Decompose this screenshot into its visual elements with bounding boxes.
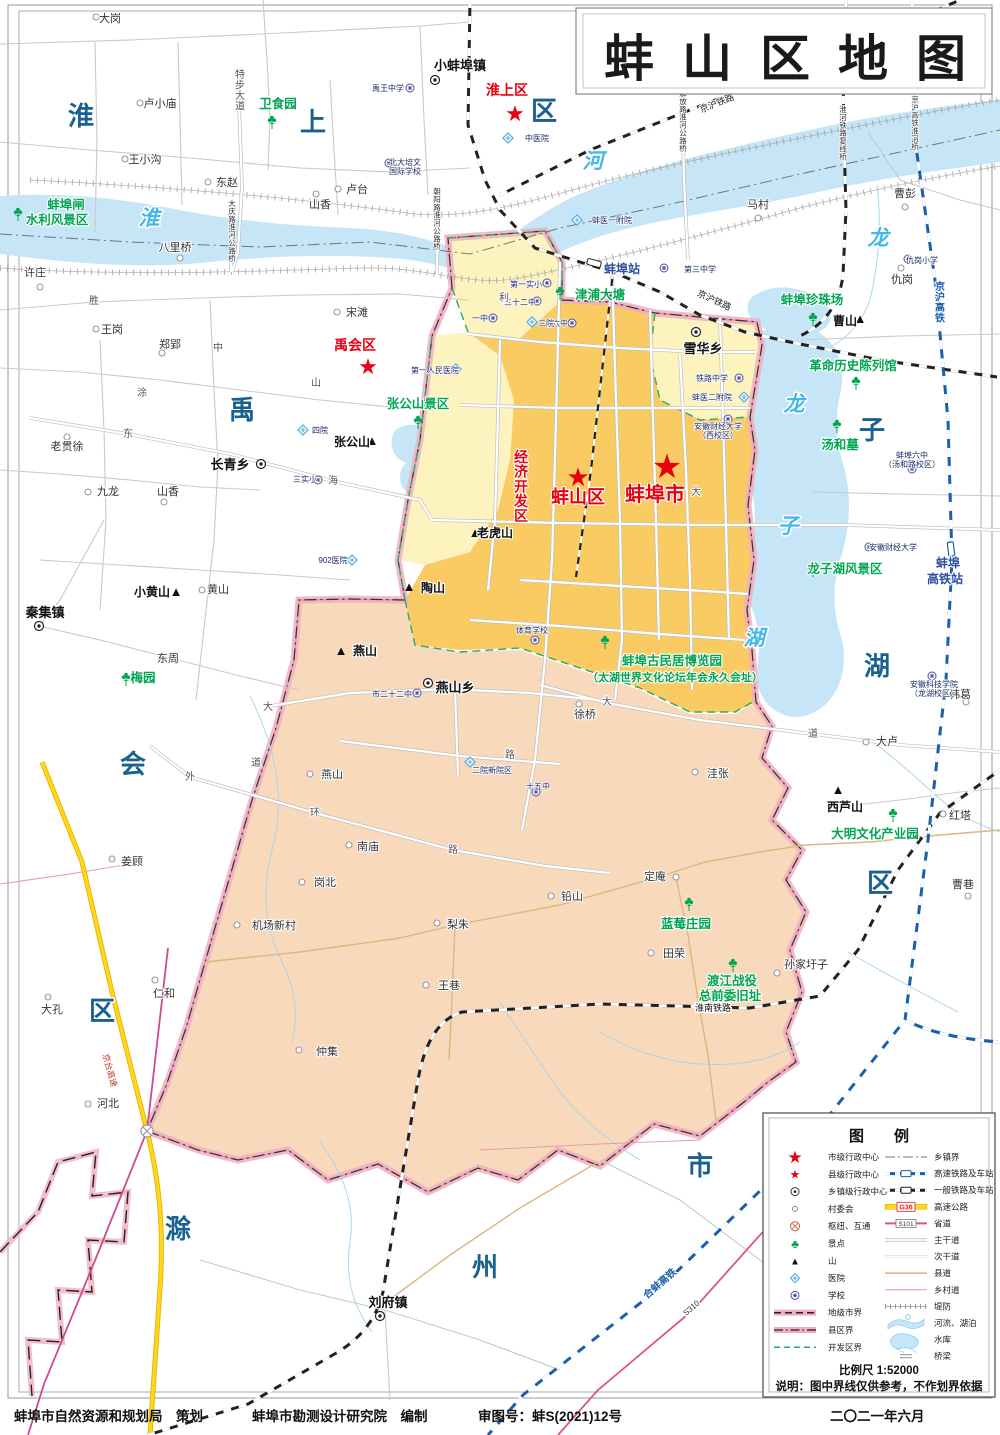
village-marker (296, 1047, 302, 1053)
bengshan-district-map: ★★★★▲▲▲▲▲▲▲♣♣♣♣♣♣♣♣♣♣♣♣♣ 淮上区禹会区子湖区滁州市淮河龙… (0, 0, 1000, 1435)
legend-item-label: 开发区界 (828, 1342, 863, 1352)
legend: 图 例 ★市级行政中心★县级行政中心乡镇级行政中心村委会枢纽、互通♣景点▲山医院… (763, 1113, 995, 1397)
mountain-icon: ▲ (790, 1256, 800, 1267)
village-marker (93, 326, 99, 332)
map-label: 燕山乡 (435, 680, 474, 695)
map-label: 子 (778, 514, 801, 538)
village-marker (152, 977, 158, 983)
map-label: 蚌山区 (551, 487, 605, 507)
legend-item-label: 山 (828, 1256, 837, 1266)
interchange-icon (791, 1222, 800, 1231)
map-label: 禹会区 (334, 337, 376, 354)
map-label: 蚌埠 (936, 555, 960, 570)
map-label: 蚌埠六中 (896, 450, 928, 460)
village-marker (64, 434, 70, 440)
map-label: 王巷 (438, 979, 460, 992)
footer-date: 二〇二一年六月 (830, 1408, 925, 1424)
map-label: 仇岗 (891, 273, 913, 286)
legend-item-label: 水库 (934, 1335, 952, 1345)
map-label: 大 (263, 700, 273, 713)
village-marker (902, 204, 908, 210)
map-label: 铅山 (561, 889, 583, 903)
village-marker (45, 994, 51, 1000)
map-label: 区 (89, 997, 115, 1026)
map-label: 体育学校 (516, 625, 548, 635)
village-marker (774, 970, 780, 976)
village-marker (863, 739, 869, 745)
legend-item-label: 堤防 (934, 1301, 952, 1311)
legend-scale: 比例尺 1:52000 (839, 1363, 919, 1377)
map-label: 蚌埠珍珠场 (781, 292, 844, 307)
map-label: 陶山 (421, 580, 445, 595)
map-label: 南庙 (357, 839, 379, 853)
school-icon (791, 1291, 799, 1299)
map-label: 六中 (552, 318, 568, 328)
map-label: 湖 (864, 652, 890, 681)
map-label: 张公山景区 (387, 396, 450, 411)
svg-text:G36: G36 (899, 1204, 912, 1211)
map-label: 马村 (747, 197, 769, 211)
map-label: 大卢 (876, 734, 898, 748)
county-admin-star-icon: ★ (358, 354, 378, 379)
map-label: 安徽科技学院 (910, 679, 958, 689)
map-label: 郑郢 (159, 337, 181, 351)
village-marker (177, 255, 183, 261)
svg-text:S101: S101 (898, 1221, 914, 1228)
legend-item-label: 主干道 (934, 1235, 960, 1245)
map-label: 四院 (312, 425, 328, 435)
map-label: 曹彭 (894, 186, 916, 200)
township-marker (376, 1312, 385, 1321)
legend-item-label: 景点 (828, 1239, 846, 1249)
map-label: 上 (300, 108, 326, 137)
school-icon (531, 636, 539, 644)
svg-text:★: ★ (790, 1168, 801, 1182)
map-label: 大明文化产业园 (831, 826, 919, 841)
map-label: 机场新村 (252, 918, 296, 932)
village-marker (692, 769, 698, 775)
map-label: 特步大道 (235, 69, 245, 113)
legend-title: 图 例 (849, 1127, 909, 1145)
map-label: 大庆路淮河公路桥 (228, 198, 236, 263)
legend-item-label: 地级市界 (828, 1308, 863, 1318)
map-label: 淮南铁路 (695, 1002, 731, 1013)
map-label: 中医院 (525, 133, 549, 143)
village-marker (334, 309, 340, 315)
village-marker (940, 811, 946, 817)
map-label: 仇岗小学 (906, 255, 938, 265)
map-label: 龙 (784, 392, 808, 416)
map-label: 山香 (309, 198, 331, 211)
map-label: 徐桥 (574, 707, 596, 721)
village-marker (137, 100, 143, 106)
village-marker (109, 856, 115, 862)
map-label: 淮河铁路复线桥 (839, 104, 847, 161)
map-label: 蚌埠站 (604, 261, 640, 276)
map-label: 东周 (157, 652, 179, 665)
map-label: （西校区） (698, 430, 738, 440)
map-label: 田荣 (663, 947, 685, 960)
map-label: 区 (531, 97, 557, 126)
map-label: 燕山 (321, 768, 343, 781)
map-label: 市 (687, 1151, 713, 1181)
village-marker (122, 156, 128, 162)
map-label: 京沪高铁淮河桥 (911, 94, 919, 151)
legend-item-label: 县级行政中心 (828, 1169, 880, 1179)
footer-credit-compiler: 蚌埠市勘测设计研究院 编制 (252, 1408, 428, 1424)
legend-item-label: 乡村道 (934, 1285, 960, 1295)
map-label: 道 (808, 727, 818, 740)
school-icon (928, 672, 936, 680)
city-boundary-icon (774, 1310, 816, 1316)
village-marker (965, 893, 971, 899)
legend-item-label: 桥梁 (934, 1351, 952, 1361)
map-label: 王小沟 (129, 153, 162, 166)
village-marker (299, 879, 305, 885)
village-marker (576, 701, 582, 707)
mountain-icon: ▲ (335, 643, 348, 658)
map-label: 中 (213, 341, 223, 354)
map-label: 蚌埠闸 (47, 197, 85, 212)
map-label: 二院新院区 (472, 765, 512, 775)
map-label: 十五中 (526, 781, 550, 791)
map-label: 三实小 (293, 474, 317, 484)
map-label: 道 (251, 756, 261, 769)
map-label: 高铁站 (927, 571, 963, 586)
map-label: 许庄 (24, 265, 46, 279)
map-label: 902医院 (318, 555, 347, 565)
county-boundary-icon (774, 1327, 816, 1333)
hsr-station-icon (947, 542, 955, 557)
map-label: 区 (867, 869, 893, 898)
map-label: 涂 (137, 386, 147, 399)
map-label: 津浦大塘 (575, 287, 626, 302)
township-marker (431, 76, 440, 85)
village-marker (234, 922, 240, 928)
map-label: 黄山 (207, 582, 229, 596)
map-label: 大 (602, 695, 612, 708)
legend-item-label: 次干道 (934, 1252, 960, 1262)
map-label: 蓝莓庄园 (661, 916, 711, 931)
map-label: 姜顾 (121, 854, 143, 868)
map-label: 子 (859, 416, 885, 445)
map-label: 安徽财经大学 (869, 542, 917, 552)
map-label: 会 (120, 750, 146, 779)
svg-text:♣: ♣ (791, 1237, 799, 1251)
map-label: 秦集镇 (24, 605, 64, 620)
map-label: 东赵 (216, 175, 238, 189)
village-marker (161, 499, 167, 505)
legend-item-label: 省道 (934, 1218, 952, 1228)
legend-item-label: 乡镇界 (934, 1152, 960, 1162)
map-label: 州 (472, 1253, 498, 1282)
legend-item-label: 村委会 (828, 1204, 854, 1214)
map-label: 卢小庙 (144, 96, 177, 110)
map-label: 卫食园 (259, 96, 297, 111)
school-icon (413, 689, 421, 697)
legend-item-label: 河流、湖泊 (934, 1318, 977, 1328)
map-label: 朝阳路淮河公路桥 (433, 187, 441, 251)
map-label: 胜 (89, 295, 99, 307)
map-label: 路 (505, 748, 515, 761)
map-label: 蚌医一附院 (592, 215, 632, 225)
village-marker (423, 982, 429, 988)
map-label: 河北 (97, 1097, 119, 1110)
map-label: 曹山 (833, 313, 857, 328)
mountain-icon: ▲ (170, 584, 183, 599)
village-icon (793, 1206, 798, 1211)
map-label: 孙家圩子 (784, 957, 828, 971)
city-admin-star-icon: ★ (652, 448, 682, 486)
map-label: 刘府镇 (368, 1295, 407, 1310)
map-label: 海 (328, 474, 338, 487)
map-label: 京沪高铁 (935, 280, 945, 325)
map-label: 龙子湖风景区 (806, 561, 883, 576)
footer-credit-planner: 蚌埠市自然资源和规划局 策划 (14, 1408, 203, 1424)
village-marker (548, 893, 554, 899)
map-label: 滁 (165, 1214, 192, 1244)
map-label: （汤和路校区） (884, 459, 940, 469)
village-marker (434, 920, 440, 926)
mountain-icon: ▲ (832, 782, 845, 797)
map-label: 蚌埠市 (625, 482, 685, 506)
township-marker (692, 328, 701, 337)
star-icon: ★ (790, 1168, 801, 1182)
township-marker (424, 679, 433, 688)
map-label: 外 (185, 771, 195, 783)
map-label: 北大培文 (389, 157, 421, 167)
map-label: 九龙 (97, 485, 119, 498)
map-label: 一中 (472, 313, 488, 323)
map-label: 山 (311, 377, 321, 389)
town-icon (791, 1188, 799, 1196)
map-label: 大孔 (41, 1002, 63, 1016)
legend-item-label: 一般铁路及车站 (934, 1185, 994, 1195)
legend-item-label: 学校 (828, 1290, 846, 1300)
map-label: 禹 (229, 396, 255, 425)
map-label: 定庵 (644, 869, 666, 883)
map-label: 燕山 (353, 643, 377, 658)
map-label: 环 (310, 808, 320, 819)
map-label: 卢台 (346, 182, 368, 196)
map-label: 淮 (68, 102, 94, 131)
village-marker (37, 284, 43, 290)
map-label: 铁路中学 (696, 373, 728, 383)
village-marker (307, 771, 313, 777)
map-label: 解放路淮河公路桥 (679, 88, 687, 153)
interchange-icon (141, 1125, 153, 1137)
map-label: 仲集 (316, 1044, 338, 1058)
school-icon (406, 84, 414, 92)
title-box: 蚌山区地图 (576, 8, 992, 94)
county-admin-star-icon: ★ (505, 101, 525, 126)
map-label: 西芦山 (827, 799, 863, 814)
village-marker (85, 1101, 91, 1107)
map-label: 国际学校 (389, 166, 421, 176)
map-label: 王岗 (101, 323, 123, 336)
village-marker (648, 950, 654, 956)
village-marker (199, 587, 205, 593)
map-label: 小黄山 (134, 584, 170, 599)
map-label: 第一人民医院 (411, 365, 459, 375)
map-page: ★★★★▲▲▲▲▲▲▲♣♣♣♣♣♣♣♣♣♣♣♣♣ 淮上区禹会区子湖区滁州市淮河龙… (0, 0, 1000, 1435)
map-label: 大岗 (99, 11, 121, 25)
map-label: 雪华乡 (683, 341, 722, 356)
village-marker (673, 874, 679, 880)
map-label: 八里桥 (159, 241, 192, 254)
map-label: 大 (691, 485, 701, 498)
legend-item-label: 高速铁路及车站 (934, 1169, 994, 1179)
map-label: 老虎山 (477, 525, 513, 540)
school-icon (543, 279, 551, 287)
school-icon (489, 314, 497, 322)
map-label: 长青乡 (210, 457, 249, 472)
village-marker (898, 265, 904, 271)
map-label: 第一实小 (510, 279, 542, 289)
map-label: 张公山 (334, 434, 370, 449)
school-icon (660, 264, 668, 272)
svg-text:▲: ▲ (790, 1256, 800, 1267)
village-marker (205, 179, 211, 185)
map-label: 经济开发区 (513, 449, 529, 525)
township-marker (257, 460, 266, 469)
map-label: 淮上区 (486, 82, 528, 99)
mountain-icon: ▲ (403, 579, 416, 594)
map-label: 曹巷 (952, 878, 974, 891)
map-label: 革命历史陈列馆 (809, 358, 897, 373)
map-label: 利 (499, 292, 509, 304)
legend-item-label: 医院 (828, 1273, 846, 1283)
map-label: 总前委旧址 (699, 988, 762, 1003)
map-label: 市二十二中 (372, 689, 412, 699)
map-label: 第三中学 (684, 264, 716, 274)
map-label: （龙湖校区） (910, 688, 958, 698)
map-label: 汤和墓 (821, 437, 859, 452)
map-label: 禹王中学 (372, 83, 404, 93)
map-label: 仁和 (153, 987, 175, 1000)
map-label: 宋滩 (346, 305, 368, 319)
school-icon (568, 319, 576, 327)
map-label: 安徽财经大学 (694, 421, 742, 431)
map-label: 洼张 (707, 766, 729, 780)
map-label: 梅园 (130, 670, 155, 685)
village-marker (346, 842, 352, 848)
village-marker (313, 191, 319, 197)
map-label: （太湖世界文化论坛年会永久会址） (587, 670, 763, 684)
village-marker (85, 489, 91, 495)
legend-note: 说明：图中界线仅供参考，不作划界依据 (776, 1379, 983, 1393)
map-label: 蚌埠古民居博览园 (622, 653, 722, 668)
legend-item-label: 县道 (934, 1268, 952, 1278)
map-label: 渡江战役 (707, 973, 758, 988)
map-label: 老贯徐 (51, 439, 84, 453)
star-big-icon: ★ (787, 1148, 802, 1167)
map-label: 路 (448, 843, 458, 856)
village-marker (335, 186, 341, 192)
village-marker (755, 215, 761, 221)
map-label: 蚌医二附院 (692, 392, 732, 402)
map-label: 龙 (868, 226, 892, 250)
legend-item-label: 市级行政中心 (828, 1152, 880, 1162)
map-label: 红塔 (949, 809, 971, 822)
map-label: 梨朱 (447, 917, 469, 931)
map-label: 东 (123, 427, 133, 440)
map-label: 小蚌埠镇 (434, 58, 486, 73)
legend-item-label: 高速公路 (934, 1202, 969, 1212)
scenic-icon: ♣ (791, 1237, 799, 1251)
map-label: 水利风景区 (26, 212, 89, 227)
svg-text:★: ★ (787, 1148, 802, 1167)
legend-item-label: 乡镇级行政中心 (828, 1187, 888, 1197)
school-icon (735, 374, 743, 382)
map-label: 岗北 (314, 876, 336, 889)
map-label: 三院 (538, 318, 554, 328)
township-marker (35, 622, 44, 631)
legend-item-label: 枢纽、互通 (828, 1221, 871, 1231)
footer-approval-number: 审图号：蚌S(2021)12号 (478, 1408, 622, 1424)
map-label: 淮 (139, 206, 163, 230)
map-label: 山香 (157, 485, 179, 498)
legend-item-label: 县区界 (828, 1325, 854, 1335)
